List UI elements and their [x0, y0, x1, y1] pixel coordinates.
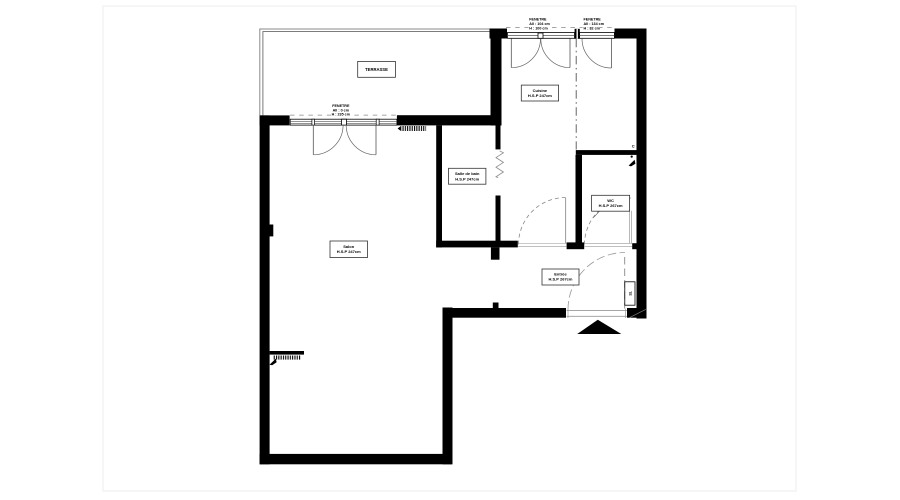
svg-text:H : 235 cm: H : 235 cm	[332, 113, 351, 117]
svg-text:H.S.P 267cm: H.S.P 267cm	[549, 277, 573, 282]
svg-text:FENETRE: FENETRE	[332, 104, 350, 108]
svg-text:H : 82 cm: H : 82 cm	[584, 26, 601, 30]
svg-text:H.S.P 247cm: H.S.P 247cm	[455, 176, 479, 181]
svg-text:TE: TE	[628, 291, 632, 296]
svg-text:H.S.P 247cm: H.S.P 247cm	[528, 93, 552, 98]
svg-text:H.S.P 267cm: H.S.P 267cm	[599, 203, 623, 208]
svg-text:H.S.P 247cm: H.S.P 247cm	[337, 249, 361, 254]
svg-text:C: C	[632, 144, 635, 149]
svg-text:TERRASSE: TERRASSE	[365, 67, 388, 72]
svg-text:H : 100 cm: H : 100 cm	[529, 26, 548, 30]
